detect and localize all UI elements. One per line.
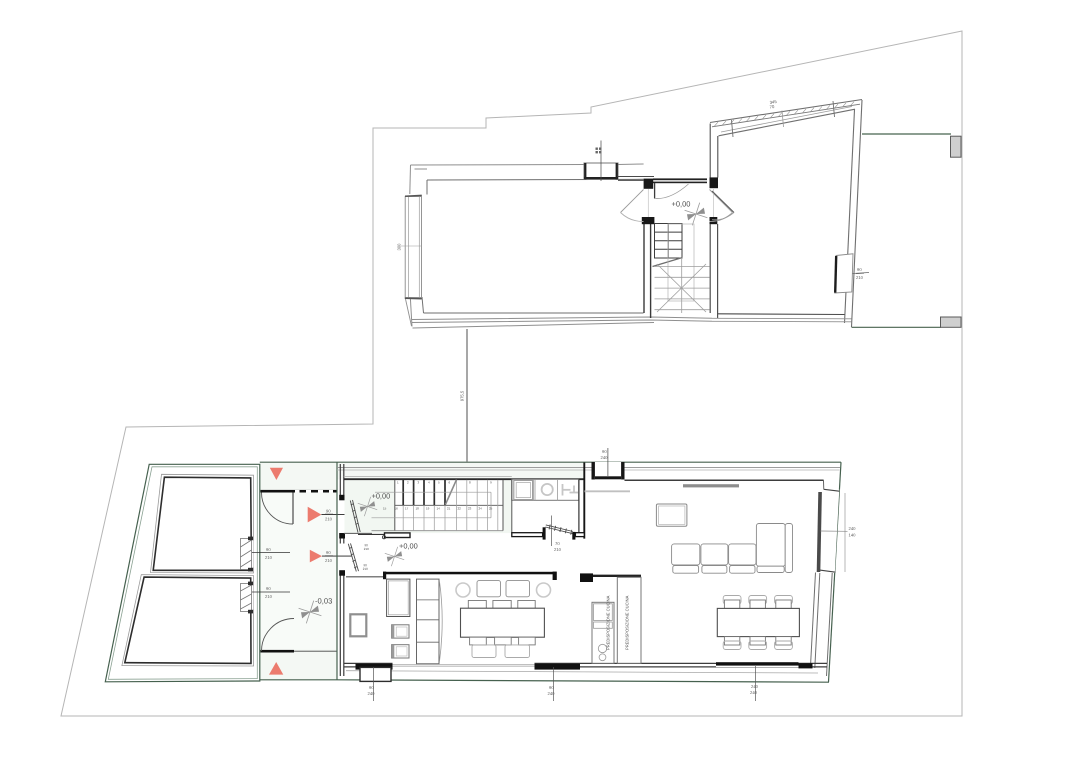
svg-text:90: 90 <box>857 267 862 272</box>
svg-text:PREDISPOSIZIONE CUCINA: PREDISPOSIZIONE CUCINA <box>625 595 630 650</box>
svg-text:19: 19 <box>426 507 430 511</box>
svg-text:240: 240 <box>751 684 759 689</box>
svg-text:210: 210 <box>363 567 368 571</box>
svg-text:90: 90 <box>266 547 271 552</box>
svg-text:210: 210 <box>265 555 273 560</box>
svg-text:210: 210 <box>856 275 864 280</box>
svg-text:17: 17 <box>405 507 409 511</box>
svg-text:PREDISPOSIZIONE CUCINA: PREDISPOSIZIONE CUCINA <box>606 595 611 650</box>
svg-text:240: 240 <box>600 455 608 460</box>
svg-text:14: 14 <box>436 507 440 511</box>
svg-text:90: 90 <box>602 449 607 454</box>
svg-text:24: 24 <box>478 507 482 511</box>
svg-text:90: 90 <box>266 586 271 591</box>
svg-text:240: 240 <box>547 691 555 696</box>
svg-text:25: 25 <box>489 507 493 511</box>
svg-text:240: 240 <box>367 691 375 696</box>
svg-text:70: 70 <box>555 541 560 546</box>
svg-text:15: 15 <box>383 507 387 511</box>
svg-text:18: 18 <box>415 507 419 511</box>
svg-text:300: 300 <box>397 243 402 251</box>
svg-text:23: 23 <box>468 507 472 511</box>
svg-text:210: 210 <box>364 547 369 551</box>
svg-text:90: 90 <box>549 685 554 690</box>
svg-text:21: 21 <box>447 507 451 511</box>
svg-text:210: 210 <box>325 558 333 563</box>
svg-text:240: 240 <box>848 526 856 531</box>
svg-text:+0,00: +0,00 <box>399 542 418 551</box>
svg-text:90: 90 <box>326 509 331 514</box>
svg-text:210: 210 <box>265 594 273 599</box>
svg-text:240: 240 <box>750 690 758 695</box>
svg-text:+0,00: +0,00 <box>671 200 690 209</box>
svg-text:+0,00: +0,00 <box>371 492 390 501</box>
svg-text:90: 90 <box>369 685 374 690</box>
svg-text:975,5: 975,5 <box>460 390 465 401</box>
svg-text:90: 90 <box>326 550 331 555</box>
svg-text:210: 210 <box>554 547 562 552</box>
svg-text:22: 22 <box>457 507 461 511</box>
svg-text:16: 16 <box>394 507 398 511</box>
svg-text:140: 140 <box>848 533 856 538</box>
svg-text:210: 210 <box>325 517 333 522</box>
svg-text:-0,03: -0,03 <box>315 597 332 606</box>
